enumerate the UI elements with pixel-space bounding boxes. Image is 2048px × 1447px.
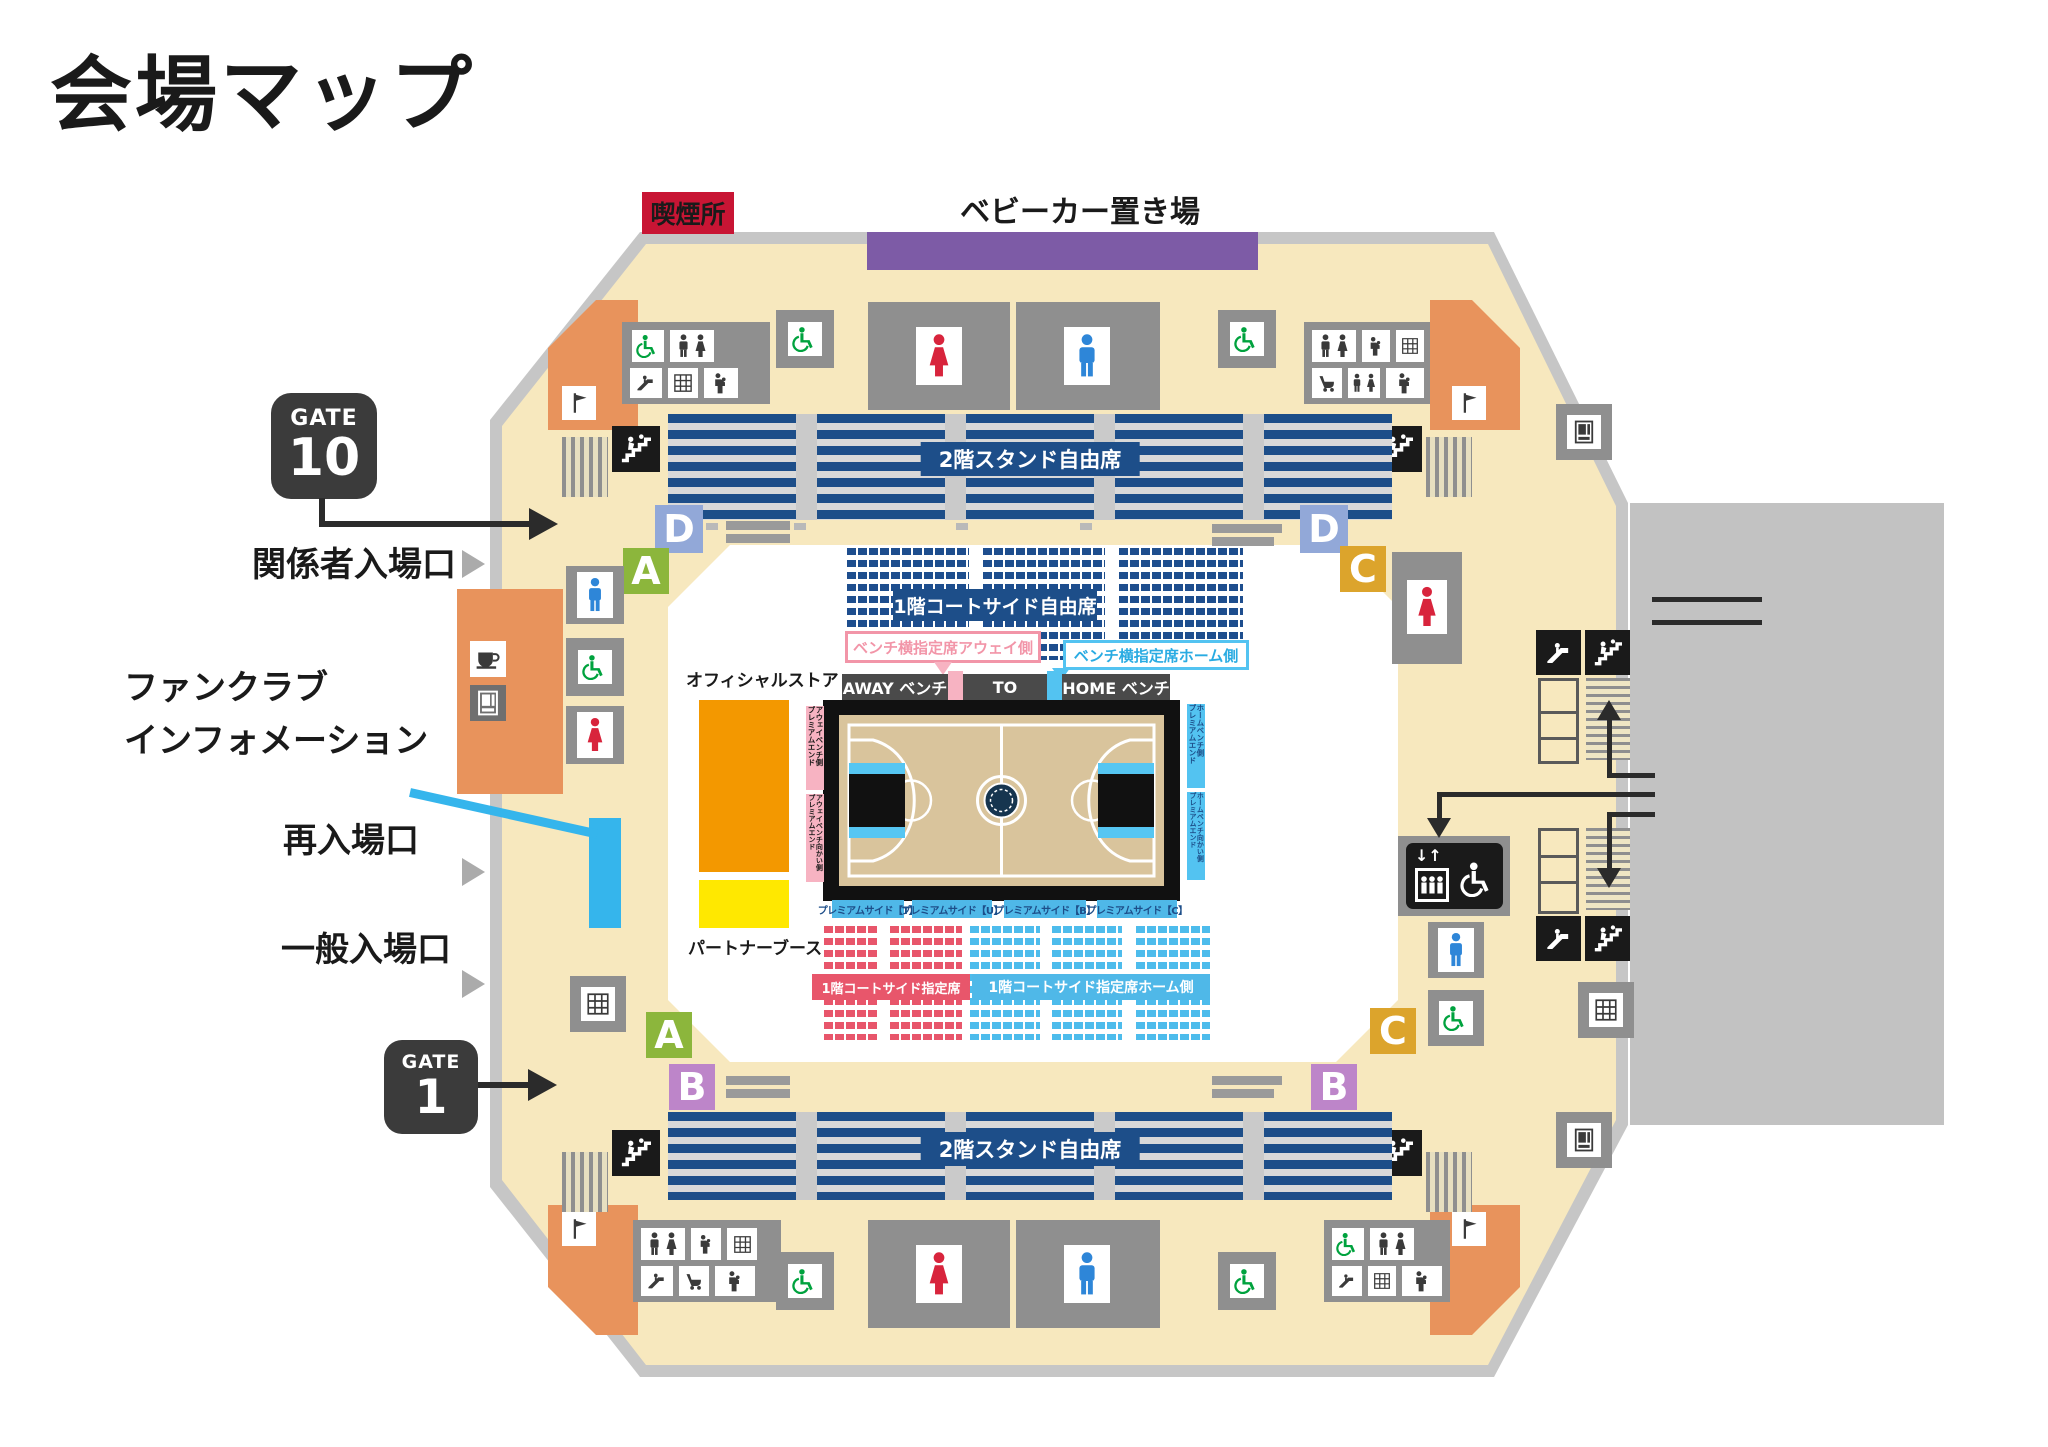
baby-room-icon	[715, 1266, 755, 1296]
door-mark	[1080, 523, 1092, 530]
door-mark	[706, 523, 718, 530]
coin-locker-icon	[668, 368, 698, 398]
shop-icon	[1452, 386, 1486, 420]
restroom-icon	[641, 1228, 685, 1260]
accessible-icon	[1439, 1001, 1473, 1035]
stand-2f-banner: 2階スタンド自由席	[921, 1132, 1140, 1166]
courtside-reserved-banner: 1階コートサイド指定席	[812, 974, 970, 1000]
away-bench: AWAY ベンチ	[842, 674, 948, 700]
fanclub-line1: ファンクラブ	[124, 662, 428, 715]
restroom-icon	[1348, 368, 1380, 398]
railing	[726, 1089, 790, 1098]
escalator-icon	[630, 368, 662, 398]
route-line	[1437, 792, 1442, 820]
escalator-icon	[1536, 630, 1581, 675]
stroller-icon	[679, 1266, 709, 1296]
stairs-hatch	[1426, 1152, 1472, 1212]
venue-map-page: 会場マップ 喫煙所 ベビーカー置き場	[0, 0, 2048, 1447]
shop-icon	[562, 1212, 596, 1246]
baby-room-icon	[691, 1228, 721, 1260]
escalator-icon	[1536, 916, 1581, 961]
vending-machine-icon	[1567, 415, 1601, 449]
stairs-hatch	[562, 437, 608, 497]
route-arrowhead-down	[1427, 818, 1451, 838]
premium-end-home: プレミアムエンドホームベンチ側	[1187, 704, 1205, 788]
accessible-icon	[1230, 1264, 1264, 1298]
official-store-label: オフィシャルストア	[686, 666, 839, 691]
route-arrowhead-up	[1597, 700, 1621, 720]
page-title: 会場マップ	[50, 28, 475, 147]
restroom-icon	[1370, 1228, 1414, 1260]
premium-side-c: プレミアムサイド【C】	[1097, 900, 1177, 918]
vending-machine-icon	[1567, 1123, 1601, 1157]
bench-connector-away	[948, 671, 963, 702]
gate-10-badge: GATE 10	[271, 393, 377, 499]
railing	[1212, 1089, 1274, 1098]
entrance-pointer	[462, 970, 485, 998]
section-c-badge: C	[1370, 1008, 1416, 1054]
route-line	[1607, 812, 1612, 870]
courtside-free-banner: 1階コートサイド自由席	[893, 589, 1097, 621]
coin-locker-icon	[1589, 993, 1623, 1027]
shop-icon	[562, 386, 596, 420]
partner-booth-area	[699, 880, 789, 928]
section-c-badge: C	[1340, 546, 1386, 592]
reentry-label: 再入場口	[283, 813, 419, 862]
fanclub-info-label: ファンクラブ インフォメーション	[124, 662, 428, 767]
railing	[1212, 1076, 1282, 1085]
gate-10-prefix: GATE	[290, 408, 357, 430]
premium-side-u: プレミアムサイド【U】	[912, 900, 992, 918]
stairs-hatch	[1426, 437, 1472, 497]
accessible-icon	[1332, 1228, 1364, 1260]
coin-locker-icon	[727, 1228, 757, 1260]
gate-10-arrowhead	[529, 508, 558, 540]
toilet-male-icon	[1438, 928, 1474, 972]
stroller-icon	[1312, 368, 1342, 398]
coin-locker-icon	[581, 987, 615, 1021]
table-officials: TO	[963, 674, 1047, 700]
section-d-badge: D	[655, 505, 703, 553]
vending-machine-icon	[470, 685, 506, 721]
gate-10-number: 10	[288, 432, 360, 484]
route-line	[1652, 620, 1762, 625]
elevator-arrows: ↓↑	[1415, 846, 1442, 865]
toilet-female-icon	[577, 712, 613, 758]
stairs-hatch	[562, 1152, 608, 1212]
premium-side-t: プレミアムサイド【T】	[832, 900, 904, 918]
stand-2f-top: 2階スタンド自由席	[668, 414, 1392, 520]
gate-1-number: 1	[415, 1074, 448, 1121]
bench-side-home-callout: ベンチ横指定席ホーム側	[1063, 640, 1249, 670]
premium-end-home-opposite: プレミアムエンドホームベンチ向かい側	[1187, 792, 1205, 880]
escalator-icon	[641, 1266, 673, 1296]
bench-side-away-callout: ベンチ横指定席アウェイ側	[845, 631, 1041, 663]
shop-icon	[1452, 1212, 1486, 1246]
railing	[726, 534, 790, 543]
stroller-area-bar	[867, 232, 1258, 270]
accessible-icon	[788, 1264, 822, 1298]
general-entrance-label: 一般入場口	[281, 922, 451, 971]
seat-block	[1264, 1112, 1392, 1200]
gate-10-arrow-line	[319, 521, 529, 527]
partner-booth-label: パートナーブース	[688, 934, 822, 959]
home-bench: HOME ベンチ	[1062, 674, 1170, 700]
accessible-icon	[578, 650, 612, 684]
gate-1-arrow-line	[478, 1082, 530, 1088]
baby-room-icon	[1362, 330, 1390, 362]
section-a-badge: A	[623, 548, 669, 594]
official-store-area	[699, 700, 789, 872]
baby-room-icon	[704, 368, 738, 398]
railing	[1212, 524, 1282, 533]
route-arrowhead-down	[1597, 868, 1621, 888]
basketball-court	[823, 700, 1180, 901]
baby-room-icon	[1386, 368, 1424, 398]
stand-2f-bottom: 2階スタンド自由席	[668, 1112, 1392, 1200]
route-line	[1607, 718, 1612, 776]
stand-2f-banner: 2階スタンド自由席	[921, 442, 1140, 476]
gate-1-badge: GATE 1	[384, 1040, 478, 1134]
fanclub-line2: インフォメーション	[124, 715, 428, 768]
cafe-icon	[470, 641, 506, 677]
courtside-reserved-home-banner: 1階コートサイド指定席ホーム側	[972, 974, 1210, 1000]
toilet-male-icon	[1064, 327, 1110, 385]
railing	[726, 521, 790, 530]
restroom-icon	[670, 330, 714, 362]
escalator-shaft	[1538, 828, 1579, 914]
door-mark	[794, 523, 806, 530]
route-line	[1607, 773, 1655, 778]
entrance-pointer	[462, 858, 485, 886]
entrance-pointer	[462, 550, 485, 578]
gate-1-arrowhead	[528, 1069, 557, 1101]
route-line	[1437, 792, 1655, 797]
bench-connector-home	[1047, 671, 1062, 702]
accessible-icon	[1230, 322, 1264, 356]
coin-locker-icon	[1396, 330, 1424, 362]
toilet-female-icon	[1407, 580, 1447, 634]
smoking-area-badge: 喫煙所	[642, 192, 734, 234]
toilet-male-icon	[1064, 1245, 1110, 1303]
stairs-icon	[1585, 630, 1630, 675]
seat-block	[668, 1112, 796, 1200]
section-b-badge: B	[669, 1064, 715, 1110]
premium-end-away: プレミアムエンドアウェイベンチ側	[806, 706, 824, 790]
escalator-shaft	[1538, 678, 1579, 764]
baby-room-icon	[1402, 1266, 1442, 1296]
smoking-label: 喫煙所	[650, 195, 725, 231]
stairs-icon	[612, 1130, 660, 1176]
premium-end-away-opposite: プレミアムエンドアウェイベンチ向かい側	[806, 794, 824, 882]
door-mark	[956, 523, 968, 530]
section-b-badge: B	[1311, 1064, 1357, 1110]
escalator-icon	[1332, 1266, 1362, 1296]
premium-side-b: プレミアムサイド【B】	[1004, 900, 1086, 918]
staff-entrance-label: 関係者入場口	[252, 537, 456, 586]
railing	[726, 1076, 790, 1085]
accessible-icon	[632, 330, 664, 362]
route-line	[1652, 597, 1762, 602]
stroller-area-label: ベビーカー置き場	[930, 190, 1230, 228]
toilet-male-icon	[577, 572, 613, 618]
elevator-icon: ↓↑	[1406, 843, 1503, 909]
route-line	[1607, 812, 1655, 817]
stairs-icon	[1585, 916, 1630, 961]
coin-locker-icon	[1368, 1266, 1396, 1296]
toilet-female-icon	[916, 1245, 962, 1303]
stairs-icon	[612, 426, 660, 472]
restroom-icon	[1312, 330, 1356, 362]
railing	[1212, 537, 1274, 546]
accessible-icon	[788, 322, 822, 356]
section-a-badge: A	[646, 1012, 692, 1058]
toilet-female-icon	[916, 327, 962, 385]
